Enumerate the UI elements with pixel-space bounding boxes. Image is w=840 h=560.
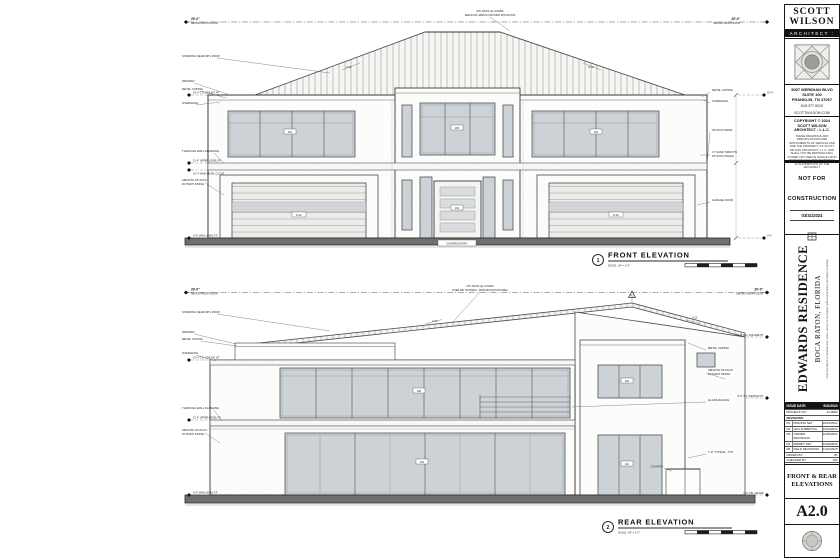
front-garage-right: D-02 xyxy=(537,175,695,238)
svg-text:FRONT ELEVATION: FRONT ELEVATION xyxy=(608,251,690,260)
svg-text:GARAGE DOOR: GARAGE DOOR xyxy=(712,198,733,202)
svg-text:MTL ROOF (2) LAYERS: MTL ROOF (2) LAYERS xyxy=(467,285,494,288)
front-top-dimension: 29'-0" ABOVE FINISH FLOOR 29'-0" ABOVE F… xyxy=(184,17,769,25)
svg-text:110: 110 xyxy=(625,463,630,466)
revision-row: R3 OWNER REVISIONS 11/25/2024 xyxy=(785,432,839,442)
svg-text:ABOVE FINISH FLOOR: ABOVE FINISH FLOOR xyxy=(736,293,763,296)
firm-address: 5007 MERIDIAN BLVD SUITE 100 FRANKLIN, T… xyxy=(785,85,839,117)
svg-text:STUCCO FINISH: STUCCO FINISH xyxy=(712,154,734,158)
svg-text:104: 104 xyxy=(420,461,425,464)
front-roof: MTL ROOF (2) LAYERS SEE ROOF SPECS FOR W… xyxy=(255,10,685,95)
svg-text:11'-4" UPPER LEVEL F.F.: 11'-4" UPPER LEVEL F.F. xyxy=(193,160,222,163)
svg-text:W/ PAINT FINISH: W/ PAINT FINISH xyxy=(182,182,204,186)
svg-text:ABOVE FINISH FLOOR: ABOVE FINISH FLOOR xyxy=(191,22,218,25)
svg-text:100: 100 xyxy=(455,207,460,210)
front-scale-bar xyxy=(685,264,757,267)
firm-name-line2: WILSON xyxy=(785,18,839,28)
svg-text:204: 204 xyxy=(288,131,293,134)
firm-website: SCOTTWILSON.COM xyxy=(785,111,839,116)
sheet-page: 29'-0" ABOVE FINISH FLOOR 29'-0" ABOVE F… xyxy=(0,0,840,560)
copyright-block: COPYRIGHT © 2024 SCOTT WILSON ARCHITECT … xyxy=(785,117,839,161)
svg-text:206: 206 xyxy=(594,131,599,134)
sheet-title-line2: ELEVATIONS xyxy=(785,481,839,489)
front-ground: COVERED ENTRY xyxy=(185,238,730,247)
svg-text:STANDING SEAM MTL ROOF: STANDING SEAM MTL ROOF xyxy=(182,54,220,58)
svg-text:10'-4" MAIN LEVEL CLG HT: 10'-4" MAIN LEVEL CLG HT xyxy=(193,173,225,176)
svg-text:REAR ELEVATION: REAR ELEVATION xyxy=(618,518,694,527)
svg-text:METAL COPING: METAL COPING xyxy=(182,87,203,91)
svg-text:210: 210 xyxy=(625,380,630,383)
svg-text:OVERHANG: OVERHANG xyxy=(712,99,728,103)
issue-date-row: ISSUE DATE: 9/31/2024 xyxy=(785,403,839,410)
firm-phone: 615.377.9010 xyxy=(785,104,839,109)
copyright-line1: COPYRIGHT © 2024 xyxy=(787,119,837,124)
svg-text:SCALE: 1/4" = 1'-0": SCALE: 1/4" = 1'-0" xyxy=(618,532,640,535)
svg-text:19'-4" T.O. CEILING HT: 19'-4" T.O. CEILING HT xyxy=(193,357,220,360)
svg-text:2: 2 xyxy=(607,525,610,531)
svg-text:19'-4" T.O. CEILING HT: 19'-4" T.O. CEILING HT xyxy=(193,92,220,95)
stamp-seal-icon xyxy=(799,529,825,553)
title-block: SCOTT WILSON ARCHITECT : 5007 MERIDIAN B… xyxy=(784,4,840,558)
project-number-label: PROJECT NO.: xyxy=(787,410,808,414)
firm-role: ARCHITECT : xyxy=(785,29,839,37)
svg-text:7'-0" TYPICAL, TYP.: 7'-0" TYPICAL, TYP. xyxy=(708,450,734,454)
front-entry: 100 xyxy=(420,177,495,238)
stamp-area xyxy=(785,525,839,557)
svg-text:29'-0": 29'-0" xyxy=(754,287,763,291)
project-name: EDWARDS RESIDENCE xyxy=(796,245,811,392)
svg-text:THROUGH WALL FLASHING: THROUGH WALL FLASHING xyxy=(182,149,219,153)
firm-seal xyxy=(785,39,839,85)
svg-text:29'-0": 29'-0" xyxy=(731,17,740,21)
svg-text:STUCCO BAND: STUCCO BAND xyxy=(712,128,732,132)
rear-windows-upper: 208 xyxy=(280,368,570,418)
svg-text:METAL COPING: METAL COPING xyxy=(712,88,733,92)
drawn-by-value: JD xyxy=(834,453,838,457)
svg-text:THROUGH WALL FLASHING: THROUGH WALL FLASHING xyxy=(182,406,219,410)
svg-text:SCALE: 1/4" = 1'-0": SCALE: 1/4" = 1'-0" xyxy=(608,265,630,268)
svg-text:29'-0": 29'-0" xyxy=(191,287,200,291)
svg-text:ABOVE FINISH FLOOR: ABOVE FINISH FLOOR xyxy=(191,293,218,296)
checked-by-row: CHECKED BY: SW xyxy=(785,458,839,463)
svg-text:8'-0" T.O. WINDOW HT: 8'-0" T.O. WINDOW HT xyxy=(738,395,764,398)
svg-text:1: 1 xyxy=(597,258,600,264)
svg-text:PARAPET: PARAPET xyxy=(182,330,195,334)
svg-text:19'-4": 19'-4" xyxy=(767,92,773,95)
svg-text:17'-4" E.O. SQUARE HT: 17'-4" E.O. SQUARE HT xyxy=(736,334,764,337)
status-line2: CONSTRUCTION xyxy=(785,196,839,203)
svg-text:0'-0": 0'-0" xyxy=(767,235,772,238)
copyright-line3: ARCHITECT : L.L.C. xyxy=(787,128,837,133)
svg-text:0'-0" FIN. GRADE: 0'-0" FIN. GRADE xyxy=(744,492,764,495)
svg-text:STANDING SEAM MTL ROOF: STANDING SEAM MTL ROOF xyxy=(182,310,220,314)
rear-scale-bar xyxy=(685,531,757,534)
revisions-label: REVISIONS: xyxy=(787,416,804,420)
front-elevation-drawing: 29'-0" ABOVE FINISH FLOOR 29'-0" ABOVE F… xyxy=(180,5,780,275)
svg-text:208: 208 xyxy=(417,390,422,393)
checked-by-value: SW xyxy=(833,458,838,462)
project-number-value: 24-0082 xyxy=(826,410,837,414)
project-location: BOCA RATON, FLORIDA xyxy=(814,275,822,362)
front-window-upper-center: 205 xyxy=(420,103,495,155)
svg-text:205: 205 xyxy=(455,127,460,130)
sheet-title-line1: FRONT & REAR xyxy=(785,473,839,481)
svg-text:D-02: D-02 xyxy=(613,214,619,217)
sheet-number: A2.0 xyxy=(785,499,839,525)
issue-date-value: 9/31/2024 xyxy=(823,404,837,408)
front-window-upper-left: 204 xyxy=(228,111,355,157)
front-title: 1 FRONT ELEVATION SCALE: 1/4" = 1'-0" xyxy=(593,251,758,268)
svg-text:0'-0" MAIN LEVEL F.F.: 0'-0" MAIN LEVEL F.F. xyxy=(193,492,218,495)
checked-by-label: CHECKED BY: xyxy=(787,458,807,462)
status-date: 03/31/2024 xyxy=(790,210,833,221)
svg-text:D-01: D-01 xyxy=(296,214,302,217)
svg-text:COUNTER: COUNTER xyxy=(651,466,664,469)
svg-text:W/ PAINT FINISH: W/ PAINT FINISH xyxy=(708,372,730,376)
front-garage-left: D-01 xyxy=(220,175,378,238)
svg-text:METAL COPING: METAL COPING xyxy=(708,346,729,350)
address-line3: FRANKLIN, TN 37067 xyxy=(785,97,839,102)
svg-text:OVERHANG: OVERHANG xyxy=(182,101,198,105)
sheet-title: FRONT & REAR ELEVATIONS xyxy=(785,465,839,499)
svg-text:3:12: 3:12 xyxy=(692,316,698,320)
svg-text:W/ PAINT FINISH: W/ PAINT FINISH xyxy=(182,432,204,436)
status-line1: NOT FOR xyxy=(785,176,839,183)
svg-text:OVERHANG: OVERHANG xyxy=(182,351,198,355)
issue-date-label: ISSUE DATE: xyxy=(787,404,807,408)
front-annotations-right: METAL COPING OVERHANG STUCCO BAND LT. SA… xyxy=(697,88,773,240)
svg-text:MTL ROOF (2) LAYERS: MTL ROOF (2) LAYERS xyxy=(477,10,504,13)
drawn-by-label: DRAWN BY: xyxy=(787,453,804,457)
front-window-upper-right: 206 xyxy=(532,111,659,157)
rear-ground xyxy=(185,495,755,505)
rear-title: 2 REAR ELEVATION SCALE: 1/4" = 1'-0" xyxy=(603,518,758,535)
svg-text:PARAPET: PARAPET xyxy=(182,79,195,83)
project-identification: EDWARDS RESIDENCE BOCA RATON, FLORIDA In… xyxy=(785,235,839,403)
rear-elevation-drawing: 29'-0" ABOVE FINISH FLOOR 29'-0" ABOVE F… xyxy=(180,283,780,555)
svg-text:SEE ROOF SPECS FOR WIND MITIGA: SEE ROOF SPECS FOR WIND MITIGATION xyxy=(465,14,516,17)
svg-text:0'-0" MAIN LEVEL F.F.: 0'-0" MAIN LEVEL F.F. xyxy=(193,235,218,238)
svg-text:COVERED ENTRY: COVERED ENTRY xyxy=(446,242,468,245)
rear-sliders-main: 104 xyxy=(285,433,565,495)
svg-text:GLASS RAILING: GLASS RAILING xyxy=(708,398,729,402)
architect-seal-icon xyxy=(793,43,831,81)
svg-text:METAL COPING: METAL COPING xyxy=(182,337,203,341)
firm-header: SCOTT WILSON ARCHITECT : xyxy=(785,5,839,39)
svg-text:ABOVE FINISH FLOOR: ABOVE FINISH FLOOR xyxy=(713,22,740,25)
status-stamp: NOT FOR CONSTRUCTION 03/31/2024 xyxy=(785,161,839,235)
firm-tagline: Inspiring clients to achieve their visio… xyxy=(825,259,829,379)
issue-revision-table: ISSUE DATE: 9/31/2024 PROJECT NO.: 24-00… xyxy=(785,403,839,465)
svg-text:29'-0": 29'-0" xyxy=(191,17,200,21)
svg-text:11'-4" UPPER LEVEL F.F.: 11'-4" UPPER LEVEL F.F. xyxy=(193,417,222,420)
svg-text:OVER WD TRUSSES - WIND MITIGAT: OVER WD TRUSSES - WIND MITIGATION AREA xyxy=(452,289,508,292)
svg-text:3:12: 3:12 xyxy=(346,65,352,69)
